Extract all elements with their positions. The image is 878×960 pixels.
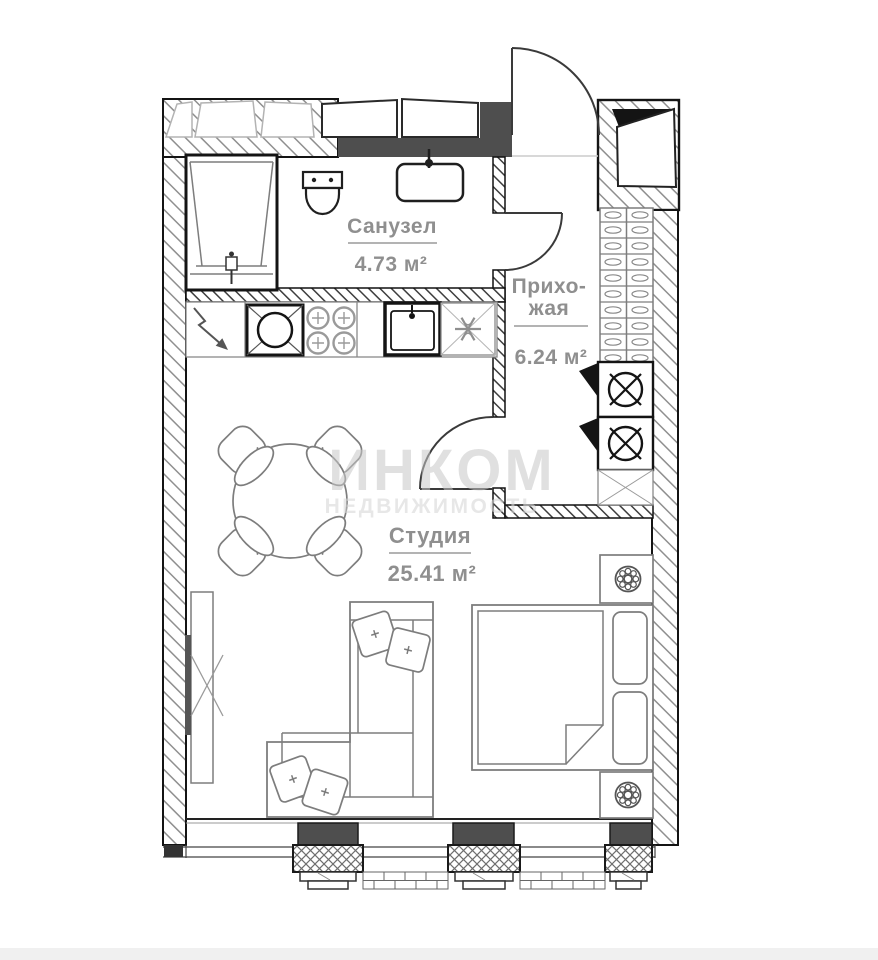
hallway-fixtures — [579, 208, 653, 505]
kitchen — [186, 302, 497, 357]
bathroom-label: Санузел 4.73 м² — [347, 215, 437, 276]
watermark: ИНКОМ НЕДВИЖИМОСТЬ — [325, 438, 556, 518]
watermark-brand: ИНКОМ — [328, 438, 555, 503]
tv-unit — [185, 592, 223, 783]
bed-pillow — [613, 612, 647, 684]
bottom-strip — [0, 948, 878, 960]
bathroom-door — [505, 213, 562, 270]
window-facade — [163, 823, 655, 889]
bathroom-area: 4.73 м² — [355, 253, 428, 276]
bed-pillow — [613, 692, 647, 764]
entrance-door — [512, 48, 599, 156]
lamp-icon — [616, 783, 641, 808]
sofa — [267, 602, 433, 817]
washing-machine — [579, 417, 653, 470]
facade-block — [293, 845, 363, 872]
hallway-label: Прихо- жая 6.24 м² — [512, 275, 588, 369]
facade-block — [605, 845, 652, 872]
window-pier — [298, 823, 358, 845]
bed — [472, 605, 653, 770]
watermark-subtitle: НЕДВИЖИМОСТЬ — [325, 495, 540, 518]
toilet — [303, 172, 342, 214]
facade-panel — [261, 102, 314, 137]
fridge — [441, 303, 495, 355]
kitchen-sink — [385, 303, 440, 355]
cabinet-box — [598, 470, 653, 505]
window-pier — [610, 823, 652, 845]
facade-panel — [195, 101, 257, 137]
partition-bathroom-hall-upper — [493, 157, 505, 213]
room-labels: Санузел 4.73 м² Прихо- жая 6.24 м² Студи… — [347, 215, 588, 586]
floor-plan-drawing: ИНКОМ НЕДВИЖИМОСТЬ Санузел 4.73 м² Прихо… — [0, 0, 878, 960]
facade-block — [448, 845, 520, 872]
sofa-pillow — [385, 627, 431, 673]
nightstand — [600, 555, 653, 603]
hallway-name-line2: жая — [528, 297, 570, 320]
studio-name: Студия — [389, 523, 471, 548]
window-pier — [453, 823, 514, 845]
nightstand — [600, 772, 653, 818]
wall-end-cap — [164, 845, 183, 857]
appliance-door-wedge — [579, 418, 598, 452]
dark-wall-corner — [480, 102, 512, 157]
tv-screen — [185, 635, 191, 735]
studio-area: 25.41 м² — [388, 561, 477, 586]
right-wall — [652, 210, 678, 845]
bathroom-name: Санузел — [347, 215, 437, 238]
left-wall — [163, 99, 186, 845]
facade-panel — [322, 100, 397, 137]
kitchen-corner-unit — [247, 305, 303, 355]
studio-label: Студия 25.41 м² — [388, 523, 477, 586]
hallway-name-line1: Прихо- — [512, 275, 587, 298]
shoe-cabinet — [600, 208, 653, 368]
hallway-area: 6.24 м² — [515, 346, 588, 369]
washing-machine — [579, 362, 653, 417]
floor-plan-page: ИНКОМ НЕДВИЖИМОСТЬ Санузел 4.73 м² Прихо… — [0, 0, 878, 960]
lamp-icon — [616, 567, 641, 592]
facade-panel — [402, 99, 478, 137]
